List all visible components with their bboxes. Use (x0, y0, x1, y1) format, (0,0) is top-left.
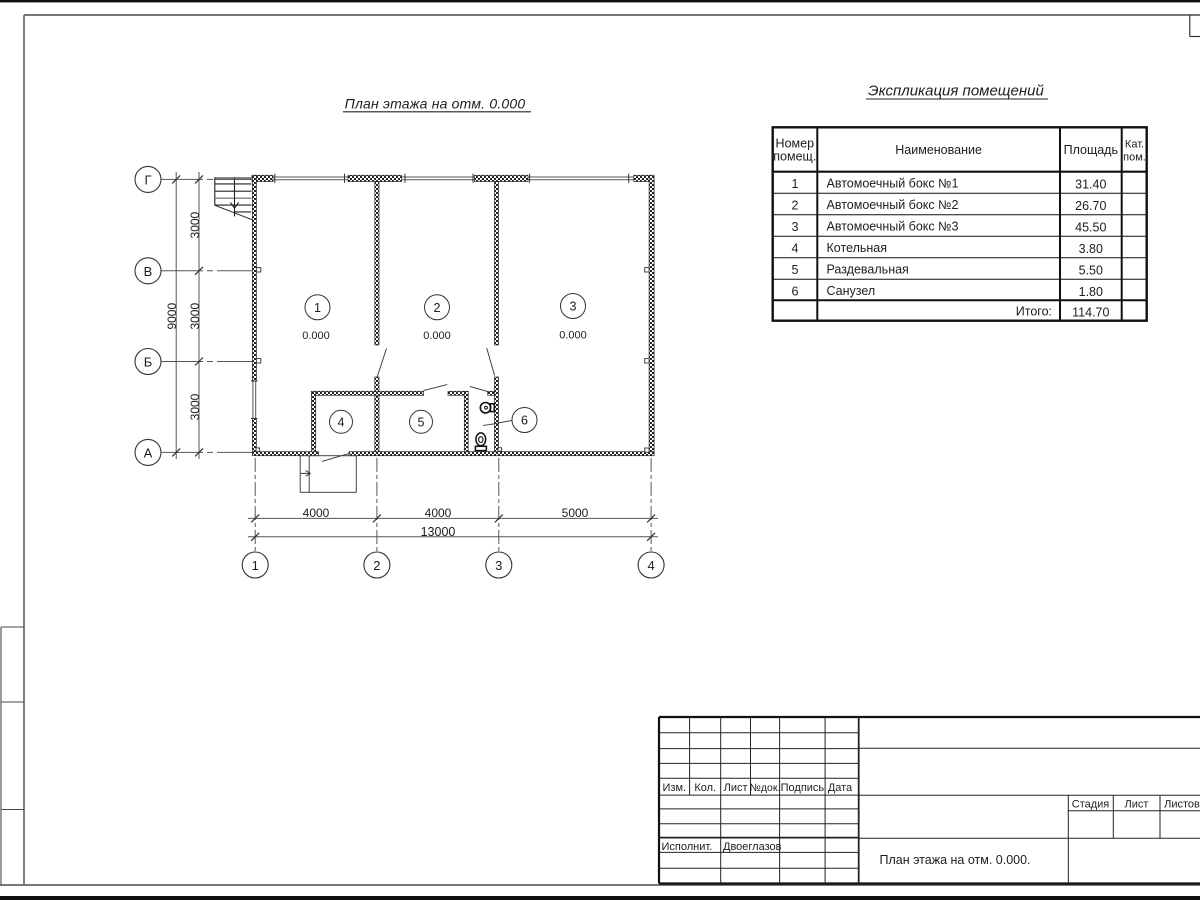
svg-text:2: 2 (792, 199, 799, 213)
svg-text:Листов: Листов (1164, 799, 1200, 811)
svg-text:4: 4 (647, 558, 654, 573)
svg-text:пом.: пом. (1123, 152, 1146, 164)
svg-text:31.40: 31.40 (1075, 178, 1106, 192)
svg-text:План этажа на отм. 0.000.: План этажа на отм. 0.000. (879, 853, 1030, 867)
svg-text:1: 1 (314, 301, 321, 315)
svg-text:3: 3 (495, 558, 502, 573)
svg-text:Автомоечный бокс №3: Автомоечный бокс №3 (827, 220, 959, 234)
svg-text:4: 4 (338, 416, 345, 430)
svg-text:26.70: 26.70 (1075, 199, 1106, 213)
svg-text:№док.: №док. (750, 782, 781, 794)
svg-text:Экспликация помещений: Экспликация помещений (868, 83, 1044, 100)
svg-text:5: 5 (792, 263, 799, 277)
svg-text:Г: Г (144, 172, 151, 187)
svg-text:6: 6 (521, 414, 528, 428)
svg-text:Исполнит.: Исполнит. (662, 841, 713, 853)
svg-text:Раздевальная: Раздевальная (827, 263, 909, 277)
svg-text:9000: 9000 (165, 303, 179, 330)
svg-text:Стадия: Стадия (1072, 799, 1110, 811)
svg-text:6: 6 (792, 285, 799, 299)
svg-text:3000: 3000 (188, 393, 202, 420)
svg-text:0.000: 0.000 (423, 330, 451, 342)
svg-text:3000: 3000 (188, 211, 202, 238)
svg-text:Номер: Номер (776, 137, 815, 151)
svg-text:4: 4 (792, 242, 799, 256)
svg-text:А: А (144, 445, 153, 460)
svg-text:1: 1 (792, 177, 799, 191)
svg-text:4000: 4000 (425, 506, 452, 520)
svg-text:5000: 5000 (562, 506, 589, 520)
svg-text:3: 3 (792, 220, 799, 234)
svg-text:3.80: 3.80 (1079, 242, 1103, 256)
svg-text:Автомоечный бокс №1: Автомоечный бокс №1 (827, 177, 959, 191)
svg-text:Кат.: Кат. (1125, 139, 1144, 151)
svg-text:Подпись: Подпись (781, 782, 825, 794)
svg-text:114.70: 114.70 (1072, 306, 1109, 320)
svg-text:Котельная: Котельная (827, 241, 888, 255)
svg-text:Лист: Лист (1125, 799, 1149, 811)
svg-text:45.50: 45.50 (1075, 221, 1106, 235)
svg-text:5: 5 (418, 416, 425, 430)
svg-text:План этажа на отм. 0.000: План этажа на отм. 0.000 (345, 96, 526, 112)
svg-text:0.000: 0.000 (559, 330, 587, 342)
svg-text:1.80: 1.80 (1079, 285, 1103, 299)
svg-text:2: 2 (434, 301, 441, 315)
svg-text:5.50: 5.50 (1079, 264, 1103, 278)
svg-text:3000: 3000 (188, 303, 202, 330)
svg-text:1: 1 (252, 558, 259, 573)
svg-text:Наименование: Наименование (895, 143, 982, 157)
svg-text:4000: 4000 (303, 506, 330, 520)
svg-text:Площадь: Площадь (1064, 143, 1118, 157)
svg-text:13000: 13000 (421, 525, 456, 539)
svg-text:Дата: Дата (828, 782, 853, 794)
svg-text:Лист: Лист (724, 782, 748, 794)
svg-text:Двоеглазов: Двоеглазов (723, 841, 782, 853)
svg-text:Кол.: Кол. (694, 782, 716, 794)
svg-text:Итого:: Итого: (1016, 305, 1052, 319)
svg-text:0.000: 0.000 (302, 330, 330, 342)
svg-text:В: В (144, 264, 153, 279)
svg-text:Автомоечный бокс №2: Автомоечный бокс №2 (827, 198, 959, 212)
svg-text:Б: Б (144, 355, 153, 370)
svg-text:3: 3 (570, 300, 577, 314)
svg-text:помещ.: помещ. (773, 150, 816, 164)
svg-text:2: 2 (373, 558, 380, 573)
svg-text:Изм.: Изм. (663, 782, 687, 794)
svg-text:Санузел: Санузел (827, 284, 876, 298)
